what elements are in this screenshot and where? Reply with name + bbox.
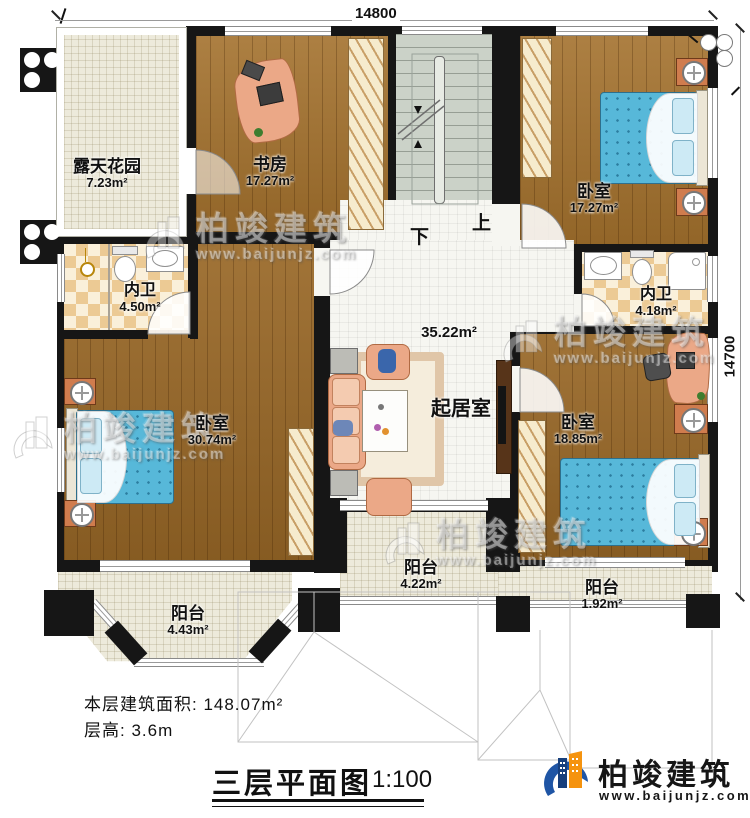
balcony-center-window-bottom [340,596,498,605]
lamp-icon [681,408,706,433]
column-circle [24,244,40,260]
balcony-right-area: 1.92m² [581,597,622,612]
wardrobe-bedroom-tr [522,38,552,178]
toilet-tank [112,246,138,255]
column-circle-outline [700,34,717,51]
wardrobe-study [348,38,384,230]
stairs-down-label: 下 [410,222,429,249]
room-label-living: 起居室 [431,398,491,420]
bed-right-pillow [674,464,696,498]
column-circle [44,224,60,240]
sink-basin [590,256,617,275]
page-title: 三层平面图 [212,760,372,802]
lamp-icon [70,381,94,405]
person-figure [378,349,396,373]
table-flowers [374,424,381,431]
bed-right-pillow [674,502,696,536]
bedroom-right-plant [697,392,705,400]
room-label-bedroom-right: 卧室 18.85m² [554,413,602,447]
title-underline-thin [212,806,424,807]
window-bedroom-left-left [57,428,65,492]
living-name: 起居室 [431,398,491,420]
brand-logo-icon [538,746,592,804]
column-circle [24,224,40,240]
stair-arrow [414,106,422,114]
room-garden-floor [57,28,186,236]
bath-left-area: 4.50m² [119,300,160,315]
stairs-up-label: 上 [472,208,491,235]
room-label-bedroom-left: 卧室 30.74m² [188,414,236,448]
column-circle-outline [716,50,733,67]
side-table [330,348,358,374]
window-study-top [225,26,331,36]
room-label-living-area: 35.22m² [421,325,477,342]
coffee-table [362,390,408,452]
bed-left-pillow [80,418,102,454]
room-label-balcony-right: 阳台 1.92m² [581,578,622,612]
column-circle-outline [716,34,733,51]
lamp-icon [70,503,94,527]
bed-tr-pillow [672,98,694,134]
north-tick [731,86,740,95]
window-living-balcony [340,500,488,511]
north-tick [60,8,67,24]
table-flowers [382,428,389,435]
window-bath-right-right [707,256,718,302]
bedroom-tr-name: 卧室 [570,182,618,201]
brand-url: www.baijunjz.com [599,788,750,803]
room-label-bath-left: 内卫 4.50m² [119,282,160,314]
shower-tray [668,252,706,290]
room-living-floor-upper [330,240,574,332]
sofa-cushion [332,436,360,464]
dimension-top: 14800 [352,5,400,22]
bedroom-right-area: 18.85m² [554,432,602,447]
bed-left-pillow [80,458,102,494]
room-label-study: 书房 17.27m² [246,155,294,189]
column-circle [24,72,40,88]
sofa-cushion [332,378,360,406]
floor-plan: 14800 14700 [0,0,750,818]
window-bedroom-left-bottom [100,560,250,572]
balcony-center-name: 阳台 [400,558,441,577]
dimension-line-right [740,30,741,600]
side-table [330,470,358,496]
person-figure [333,420,353,436]
toilet-bowl [114,256,136,282]
bed-tr-pillow [672,140,694,176]
balcony-center-area: 4.22m² [400,577,441,592]
balcony-right-name: 阳台 [581,578,622,597]
door-gap-garden-study [186,148,196,194]
bath-left-divider [108,244,110,330]
balcony-post [496,596,530,632]
garden-name: 露天花园 [73,157,141,176]
wardrobe-bedroom-right [518,420,546,553]
column-circle [44,52,60,68]
column-circle [24,52,40,68]
dimension-right: 14700 [722,324,739,390]
stair-arrow [414,140,422,148]
study-plant [254,128,263,137]
living-balcony-corner-right [486,498,520,572]
room-label-garden: 露天花园 7.23m² [73,157,141,191]
bath-right-area: 4.18m² [635,304,676,319]
bath-left-wall-right [188,244,198,338]
watermark-logo-icon [10,412,56,464]
bath-left-wall-bottom [64,330,148,339]
bedroom-left-name: 卧室 [188,414,236,433]
lamp-icon [682,191,706,215]
bath-left-name: 内卫 [119,282,160,300]
door-gap-bedroom-left [314,248,330,296]
garden-area: 7.23m² [73,176,141,191]
window-stairs-top [402,26,482,35]
armchair-bottom [366,478,412,516]
floor-area-note: 本层建筑面积: 148.07m² [84,690,283,715]
bedroom-right-chair [642,352,672,382]
bedroom-left-area: 30.74m² [188,433,236,448]
door-gap-bedroom-tr [492,204,520,246]
balcony-post [686,594,720,628]
shower-drain [692,258,700,266]
bedroom-right-monitor [676,352,695,369]
bedroom-tr-area: 17.27m² [570,201,618,216]
balcony-post [300,596,336,632]
bath-right-name: 内卫 [635,286,676,304]
toilet-tank [630,250,654,258]
room-label-bath-right: 内卫 4.18m² [635,286,676,318]
bath-left-wall-bottom2 [190,330,198,339]
balcony-left-name: 阳台 [167,604,208,623]
floor-height-note: 层高: 3.6m [84,716,173,741]
study-name: 书房 [246,155,294,174]
window-bedroom-tr-top [556,26,648,36]
toilet-bowl [632,259,652,285]
bedroom-right-name: 卧室 [554,413,602,432]
shower-head [80,262,95,277]
balcony-left-area: 4.43m² [167,623,208,638]
room-label-balcony-left: 阳台 4.43m² [167,604,208,638]
dim-tick [708,10,718,20]
lamp-icon [682,61,706,85]
table-item [378,404,384,410]
dim-tick [51,10,61,20]
title-underline [212,799,424,802]
shower-cord [85,248,86,262]
balcony-post [44,590,94,636]
wardrobe-bedroom-left [288,428,314,556]
room-label-bedroom-tr: 卧室 17.27m² [570,182,618,216]
window-bath-left-left [57,254,65,302]
study-area: 17.27m² [246,174,294,189]
stair-railing [434,56,445,204]
page-title-scale: 1:100 [372,766,432,794]
sink-basin [152,250,178,267]
balcony-left-window-bottom [134,658,264,667]
window-bedroom-tr-right [707,88,718,178]
tv-screen [498,386,506,444]
door-gap-bath-right [574,294,582,326]
window-bedroom-right-bottom [545,557,685,568]
living-area: 35.22m² [421,325,477,342]
room-label-balcony-center: 阳台 4.22m² [400,558,441,592]
